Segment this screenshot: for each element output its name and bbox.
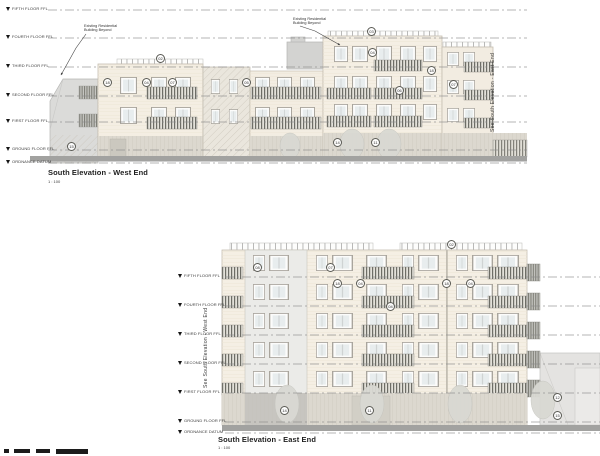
level-triangle-icon [178,274,182,278]
level-marker: ORDNANCE DATUM [6,159,51,164]
level-label: FOURTH FLOOR FFL [12,34,53,39]
level-triangle-icon [178,332,182,336]
keynote-bubble: 02 [447,240,456,249]
level-marker: FIRST FLOOR FFL [6,118,48,123]
keynote-bubble: 06 [395,86,404,95]
level-label: SECOND FLOOR FFL [12,92,54,97]
level-triangle-icon [6,35,10,39]
keynote-bubble: 07 [326,263,335,272]
west-elevation-title: South Elevation - West End [48,168,148,177]
level-marker: FIFTH FLOOR FFL [178,273,220,278]
east-elevation-title: South Elevation - East End [218,435,316,444]
level-triangle-icon [6,119,10,123]
level-label: FIRST FLOOR FFL [12,118,48,123]
keynote-bubble: 04 [356,279,365,288]
level-triangle-icon [178,361,182,365]
level-marker: ORDNANCE DATUM [178,429,223,434]
keynote-bubble: 11 [371,138,380,147]
east-ground-bar [222,425,600,431]
keynote-bubble: 18 [442,279,451,288]
keynote-bubble: 15 [67,142,76,151]
keynote-bubble: 04 [466,279,475,288]
level-triangle-icon [178,419,182,423]
level-marker: GROUND FLOOR FFL [178,418,227,423]
level-triangle-icon [178,303,182,307]
level-marker: THIRD FLOOR FFL [178,331,221,336]
level-label: FIFTH FLOOR FFL [184,273,220,278]
note-line: Building Beyond [84,28,117,32]
level-label: THIRD FLOOR FFL [12,63,49,68]
existing-building-note: Existing Residential Building Beyond [84,24,117,33]
keynote-bubble: 05 [242,78,251,87]
level-triangle-icon [178,390,182,394]
level-triangle-icon [6,160,10,164]
level-marker: THIRD FLOOR FFL [6,63,49,68]
note-line: Building Beyond [293,21,326,25]
level-triangle-icon [6,7,10,11]
level-marker: GROUND FLOOR FFL [6,146,55,151]
keynote-bubble: 07 [168,78,177,87]
keynote-bubble: 04 [386,302,395,311]
keynote-bubble: 12 [553,393,562,402]
level-label: GROUND FLOOR FFL [12,146,55,151]
keynote-bubble: 14 [333,138,342,147]
keynote-bubble: 18 [427,66,436,75]
level-marker: FOURTH FLOOR FFL [178,302,225,307]
keynote-bubble: 02 [156,54,165,63]
level-label: FIFTH FLOOR FFL [12,6,48,11]
keynote-bubble: 04 [368,48,377,57]
east-elevation-scale: 1 : 100 [218,445,230,450]
level-label: ORDNANCE DATUM [12,159,51,164]
level-triangle-icon [6,147,10,151]
keynote-bubble: 07 [449,80,458,89]
match-line-label: See South Elevation - East End [490,42,496,142]
match-line-label: See South Elevation - West End [203,288,209,408]
level-label: GROUND FLOOR FFL [184,418,227,423]
keynote-bubble: 11 [365,406,374,415]
level-label: ORDNANCE DATUM [184,429,223,434]
level-marker: SECOND FLOOR FFL [178,360,226,365]
keynote-bubble: 04 [142,78,151,87]
level-marker: FIFTH FLOOR FFL [6,6,48,11]
level-marker: SECOND FLOOR FFL [6,92,54,97]
existing-building-note: Existing Residential Building Beyond [293,17,326,26]
elevation-drawing-sheet: FIFTH FLOOR FFL FOURTH FLOOR FFL THIRD F… [0,0,600,456]
east-elevation-drawing [222,243,600,433]
graphic-scale-bar [4,449,88,454]
west-ground-bar [30,156,527,162]
level-triangle-icon [6,93,10,97]
level-marker: FIRST FLOOR FFL [178,389,220,394]
level-triangle-icon [6,64,10,68]
keynote-bubble: 15 [553,411,562,420]
keynote-bubble: 18 [103,78,112,87]
keynote-bubble: 14 [280,406,289,415]
keynote-bubble: 03 [367,27,376,36]
keynote-bubble: 18 [333,279,342,288]
level-marker: FOURTH FLOOR FFL [6,34,53,39]
keynote-bubble: 08 [253,263,262,272]
west-elevation-scale: 1 : 100 [48,179,60,184]
drawing-linework [0,0,600,456]
level-triangle-icon [178,430,182,434]
